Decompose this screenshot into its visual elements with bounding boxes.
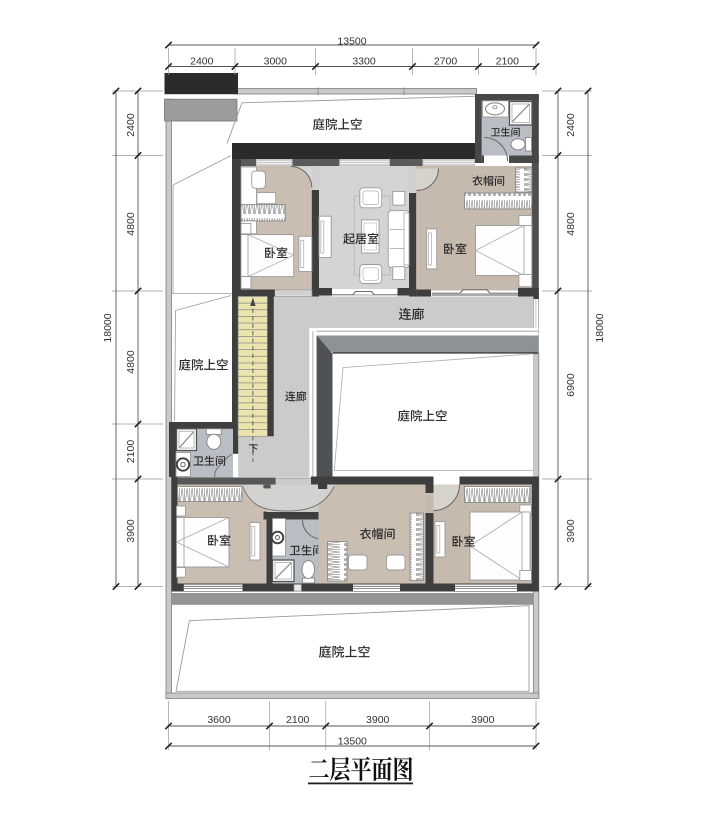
svg-text:18000: 18000 — [102, 313, 114, 342]
svg-text:6900: 6900 — [565, 373, 577, 397]
svg-text:2100: 2100 — [125, 440, 137, 464]
svg-text:2100: 2100 — [286, 714, 310, 726]
svg-text:3300: 3300 — [352, 55, 376, 67]
svg-text:3900: 3900 — [125, 519, 137, 543]
svg-text:4800: 4800 — [125, 350, 137, 374]
svg-text:2400: 2400 — [565, 113, 577, 137]
svg-text:4800: 4800 — [565, 212, 577, 236]
svg-text:3600: 3600 — [207, 714, 231, 726]
svg-text:2100: 2100 — [496, 55, 520, 67]
svg-text:18000: 18000 — [594, 313, 606, 342]
svg-text:3000: 3000 — [264, 55, 288, 67]
svg-text:3900: 3900 — [366, 714, 390, 726]
svg-text:3900: 3900 — [471, 714, 495, 726]
svg-text:2700: 2700 — [434, 55, 458, 67]
svg-text:13500: 13500 — [337, 35, 366, 47]
svg-text:13500: 13500 — [338, 735, 367, 747]
svg-text:2400: 2400 — [190, 55, 214, 67]
svg-text:4800: 4800 — [125, 212, 137, 236]
svg-text:2400: 2400 — [125, 113, 137, 137]
svg-text:3900: 3900 — [565, 519, 577, 543]
